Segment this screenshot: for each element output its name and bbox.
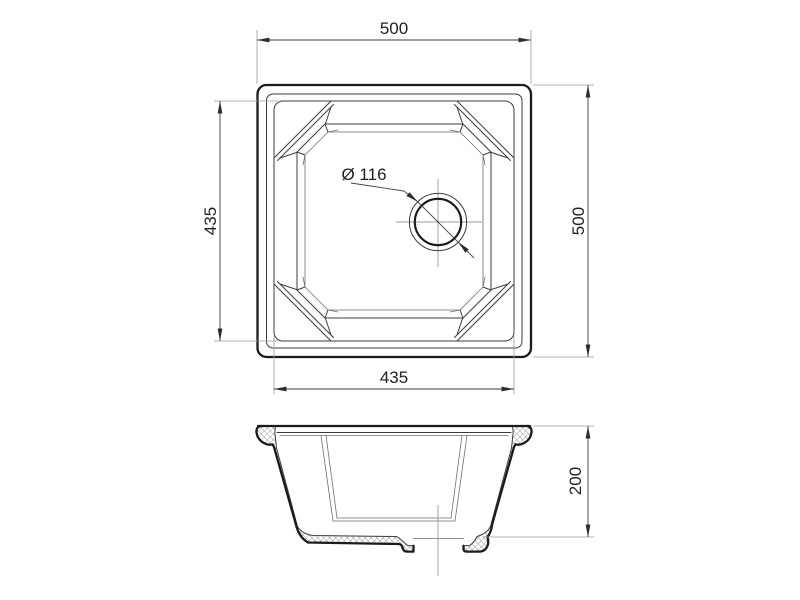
dimension-overall-height-right: 500 [533, 85, 594, 357]
dim-bottom-bowl-label: 435 [380, 368, 408, 387]
section-left-wall [256, 426, 413, 552]
section-outer-profile-left [256, 426, 413, 552]
drain-diameter-label: Ø 116 [341, 165, 386, 184]
dim-section-height-label: 200 [566, 467, 585, 495]
dim-top-width-label: 500 [380, 19, 408, 38]
dim-right-height-label: 500 [569, 207, 588, 235]
section-view: 200 [256, 426, 594, 576]
corner-chamfer-details [274, 101, 514, 341]
drain-arrow-tail [458, 242, 474, 258]
dimension-overall-width-top: 500 [257, 19, 531, 84]
dim-left-bowl-label: 435 [201, 207, 220, 235]
technical-drawing-canvas: Ø 116 500 435 500 435 [0, 0, 800, 600]
sink-drawing-svg: Ø 116 500 435 500 435 [0, 0, 800, 600]
top-view: Ø 116 500 435 500 435 [201, 19, 594, 394]
drain-leader-line [351, 183, 418, 202]
bowl-opening-edge [274, 101, 514, 341]
sink-outer-edge [258, 85, 532, 357]
far-wall-chamfer-lines [321, 436, 467, 522]
bowl-bottom-inner-octagon [305, 132, 483, 310]
dimension-bowl-width-bottom: 435 [274, 336, 514, 394]
dimension-section-height: 200 [483, 426, 594, 537]
section-outer-profile-right [464, 426, 532, 552]
drain: Ø 116 [341, 165, 482, 267]
